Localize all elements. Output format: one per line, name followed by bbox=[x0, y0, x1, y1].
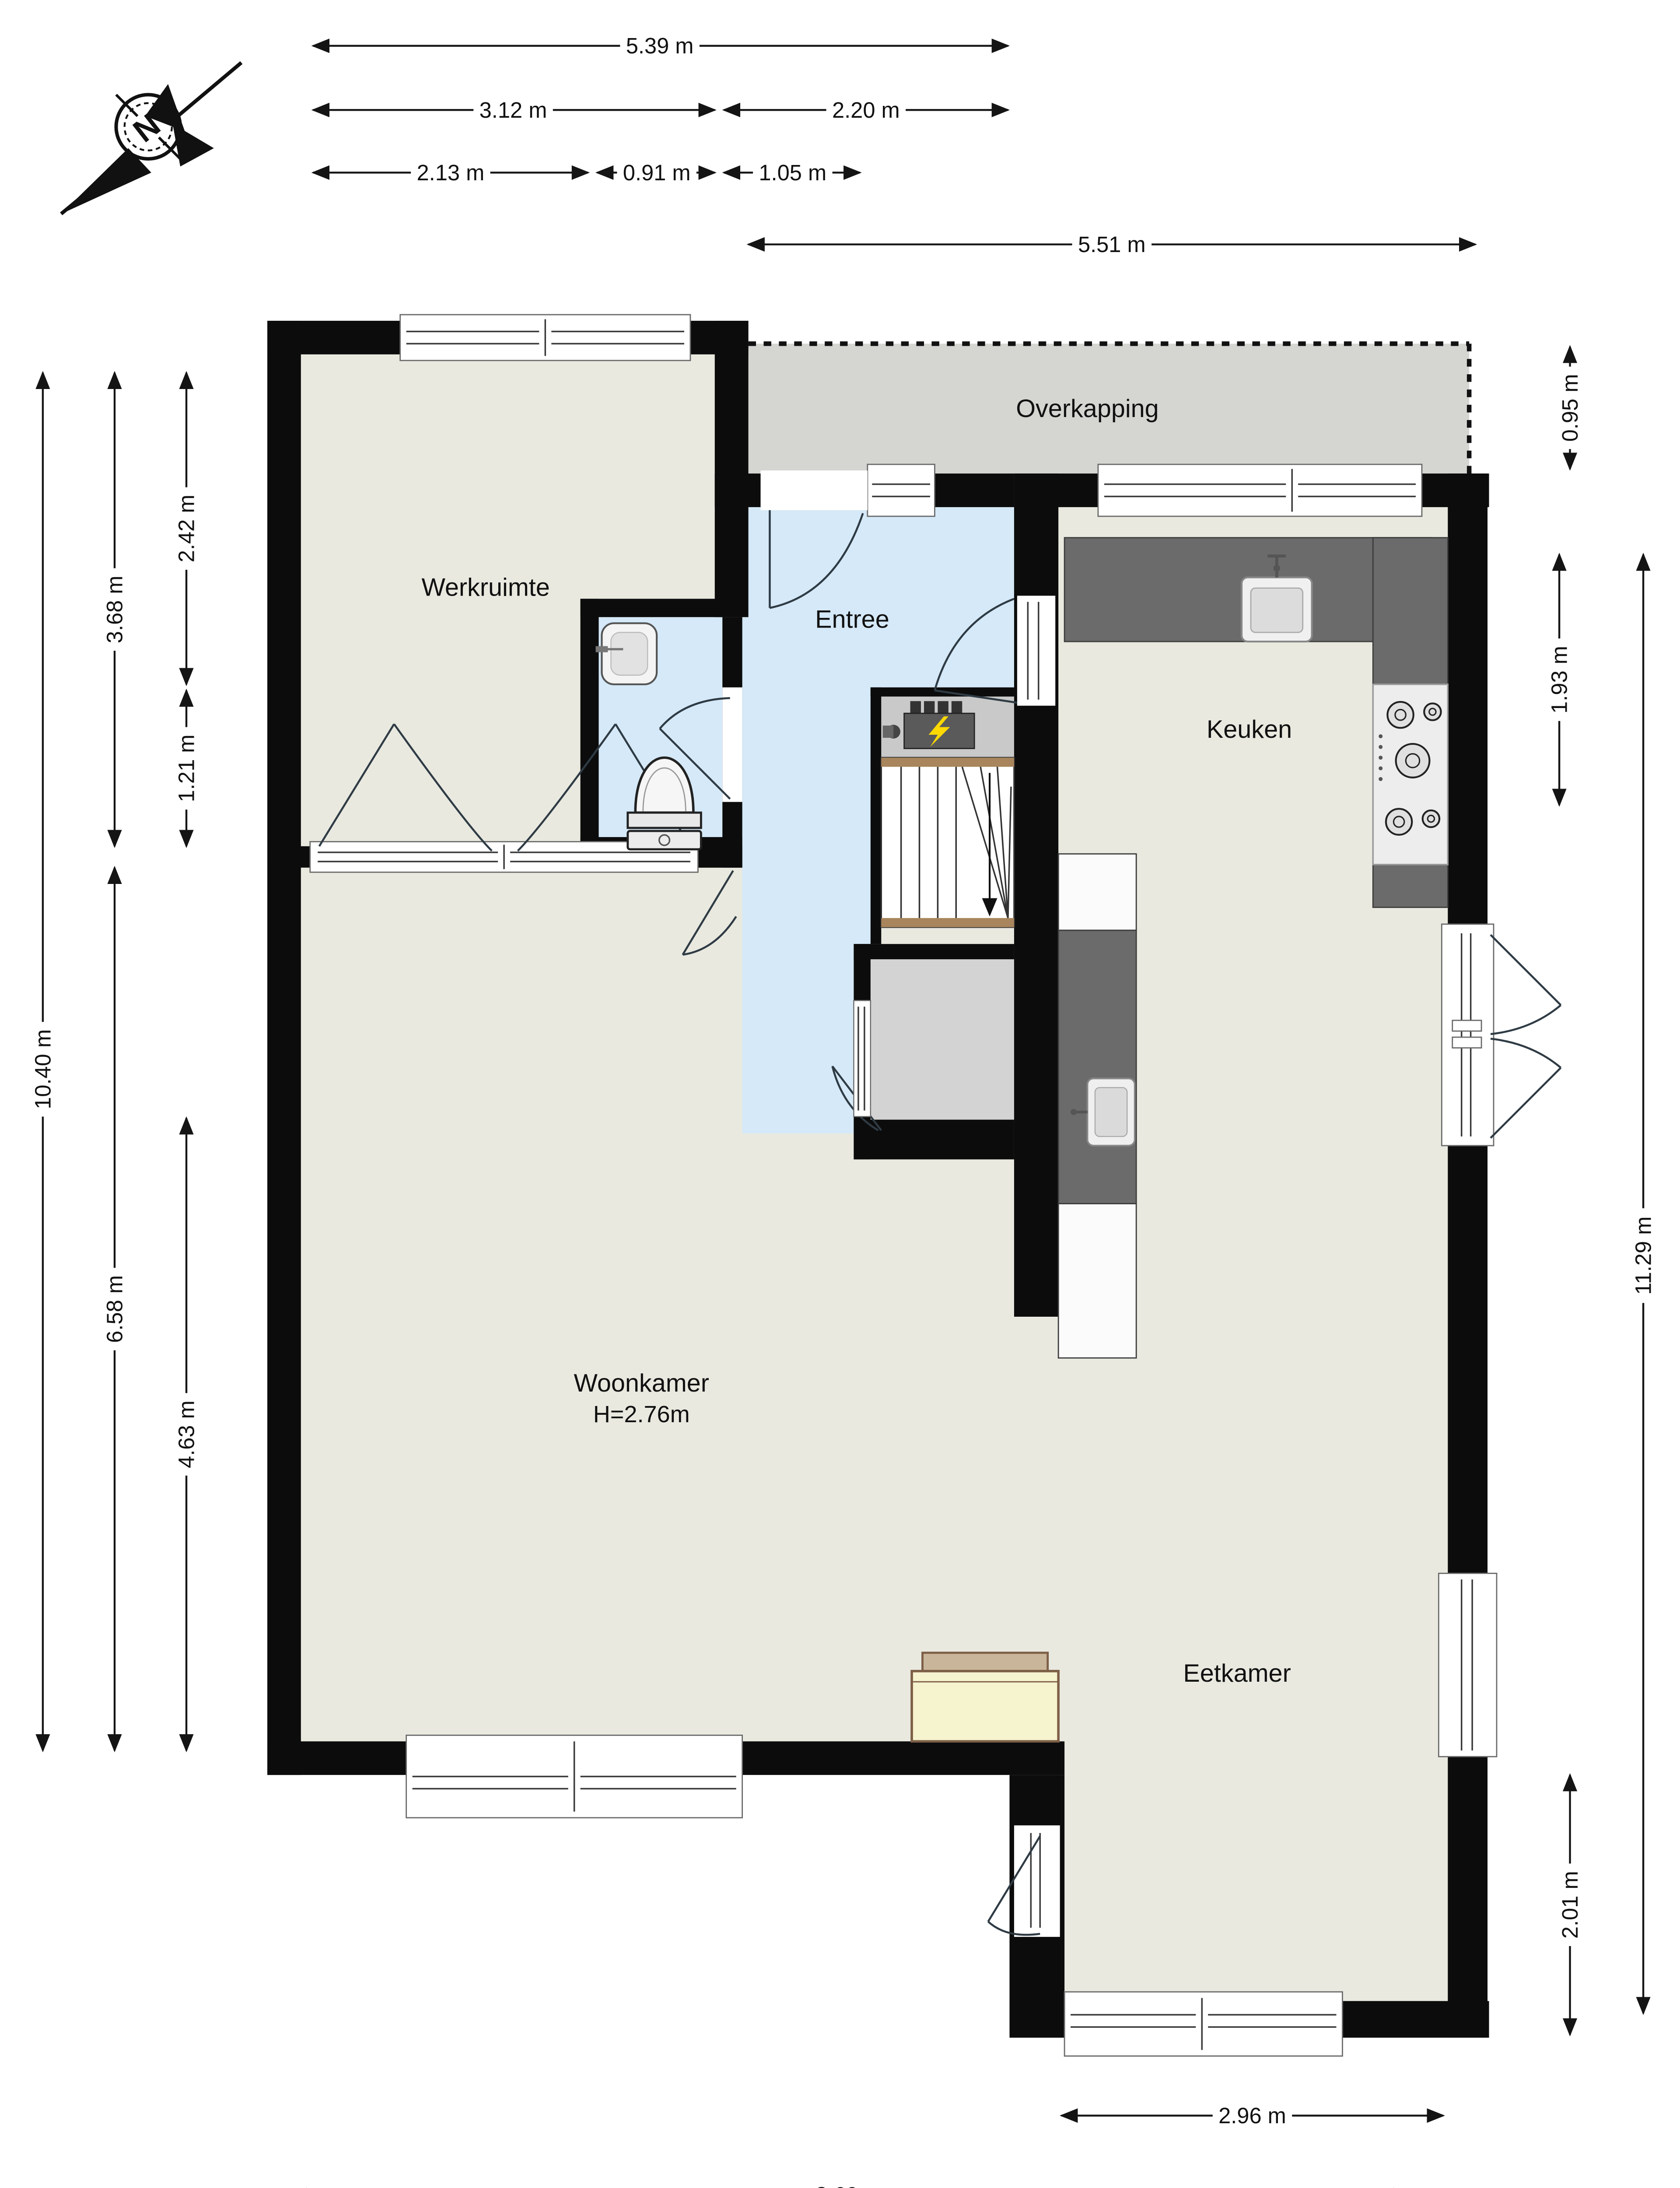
dim-left-woonkamer: 6.58 m bbox=[102, 868, 127, 1751]
dim-top-werkruimte: 3.12 m bbox=[313, 98, 715, 123]
window-entree bbox=[868, 464, 935, 516]
label-entree: Entree bbox=[815, 606, 889, 634]
garden-french-doors bbox=[1442, 924, 1561, 1146]
window-keuken bbox=[1098, 464, 1422, 516]
window-woonkamer bbox=[406, 1735, 742, 1817]
toilet-sink-symbol bbox=[595, 623, 657, 684]
stove-symbol bbox=[1373, 684, 1448, 865]
label-woonkamer-height: H=2.76m bbox=[593, 1401, 690, 1427]
svg-text:3.68 m: 3.68 m bbox=[102, 575, 127, 643]
svg-text:10.40 m: 10.40 m bbox=[30, 1029, 55, 1109]
svg-text:5.39 m: 5.39 m bbox=[626, 33, 694, 58]
label-woonkamer: Woonkamer bbox=[574, 1369, 709, 1397]
window-eetkamer bbox=[1064, 1992, 1342, 2056]
dim-top-total: 5.39 m bbox=[313, 33, 1008, 58]
dim-bottom-total: 8.69 m bbox=[290, 2183, 1410, 2188]
svg-text:5.51 m: 5.51 m bbox=[1078, 232, 1146, 257]
svg-text:6.58 m: 6.58 m bbox=[102, 1275, 127, 1343]
window-right bbox=[1438, 1573, 1497, 1757]
dim-top-overkapping: 5.51 m bbox=[749, 232, 1476, 257]
dim-top-sub-c: 1.05 m bbox=[724, 160, 860, 185]
label-keuken: Keuken bbox=[1207, 715, 1292, 743]
dim-top-sub-a: 2.13 m bbox=[313, 160, 588, 185]
svg-text:2.42 m: 2.42 m bbox=[174, 494, 199, 562]
svg-text:3.12 m: 3.12 m bbox=[479, 98, 547, 123]
compass-icon: N bbox=[61, 63, 241, 214]
dim-bottom-eetkamer: 2.96 m bbox=[1061, 2103, 1443, 2128]
stairs-symbol bbox=[881, 757, 1014, 927]
svg-text:1.05 m: 1.05 m bbox=[759, 160, 826, 185]
svg-text:1.21 m: 1.21 m bbox=[174, 734, 199, 802]
svg-text:4.63 m: 4.63 m bbox=[174, 1400, 199, 1468]
svg-text:11.29 m: 11.29 m bbox=[1631, 1217, 1656, 1295]
svg-text:2.20 m: 2.20 m bbox=[832, 98, 900, 123]
dim-right-total: 11.29 m bbox=[1631, 554, 1656, 2013]
svg-text:8.69 m: 8.69 m bbox=[815, 2183, 883, 2188]
dim-right-overkapping: 0.95 m bbox=[1557, 347, 1582, 469]
label-werkruimte: Werkruimte bbox=[422, 573, 550, 601]
dim-right-keuken: 1.93 m bbox=[1547, 554, 1572, 805]
window-werkruimte bbox=[400, 315, 690, 361]
svg-text:2.01 m: 2.01 m bbox=[1557, 1871, 1582, 1939]
dim-left-woonkamer-lower: 4.63 m bbox=[174, 1118, 199, 1750]
dresser-symbol bbox=[912, 1653, 1058, 1741]
dim-top-sub-b: 0.91 m bbox=[597, 160, 715, 185]
svg-text:2.13 m: 2.13 m bbox=[417, 160, 485, 185]
dim-top-entree: 2.20 m bbox=[724, 98, 1008, 123]
dim-left-werkruimte: 3.68 m bbox=[102, 373, 127, 846]
label-overkapping: Overkapping bbox=[1016, 395, 1158, 423]
svg-text:0.91 m: 0.91 m bbox=[623, 160, 691, 185]
svg-text:1.93 m: 1.93 m bbox=[1547, 646, 1572, 714]
dim-right-eetkamer: 2.01 m bbox=[1557, 1775, 1582, 2034]
closet-door bbox=[854, 1000, 870, 1116]
closet-area bbox=[871, 959, 1014, 1120]
svg-text:0.95 m: 0.95 m bbox=[1557, 374, 1582, 442]
dim-left-lower: 1.21 m bbox=[174, 691, 199, 846]
eetkamer-door bbox=[988, 1825, 1060, 1937]
floorplan-canvas: Werkruimte Entree Overkapping Keuken Woo… bbox=[0, 0, 1680, 2188]
label-eetkamer: Eetkamer bbox=[1183, 1659, 1291, 1687]
svg-text:2.96 m: 2.96 m bbox=[1218, 2103, 1286, 2128]
dim-left-upper: 2.42 m bbox=[174, 373, 199, 684]
dim-left-total: 10.40 m bbox=[30, 373, 55, 1751]
